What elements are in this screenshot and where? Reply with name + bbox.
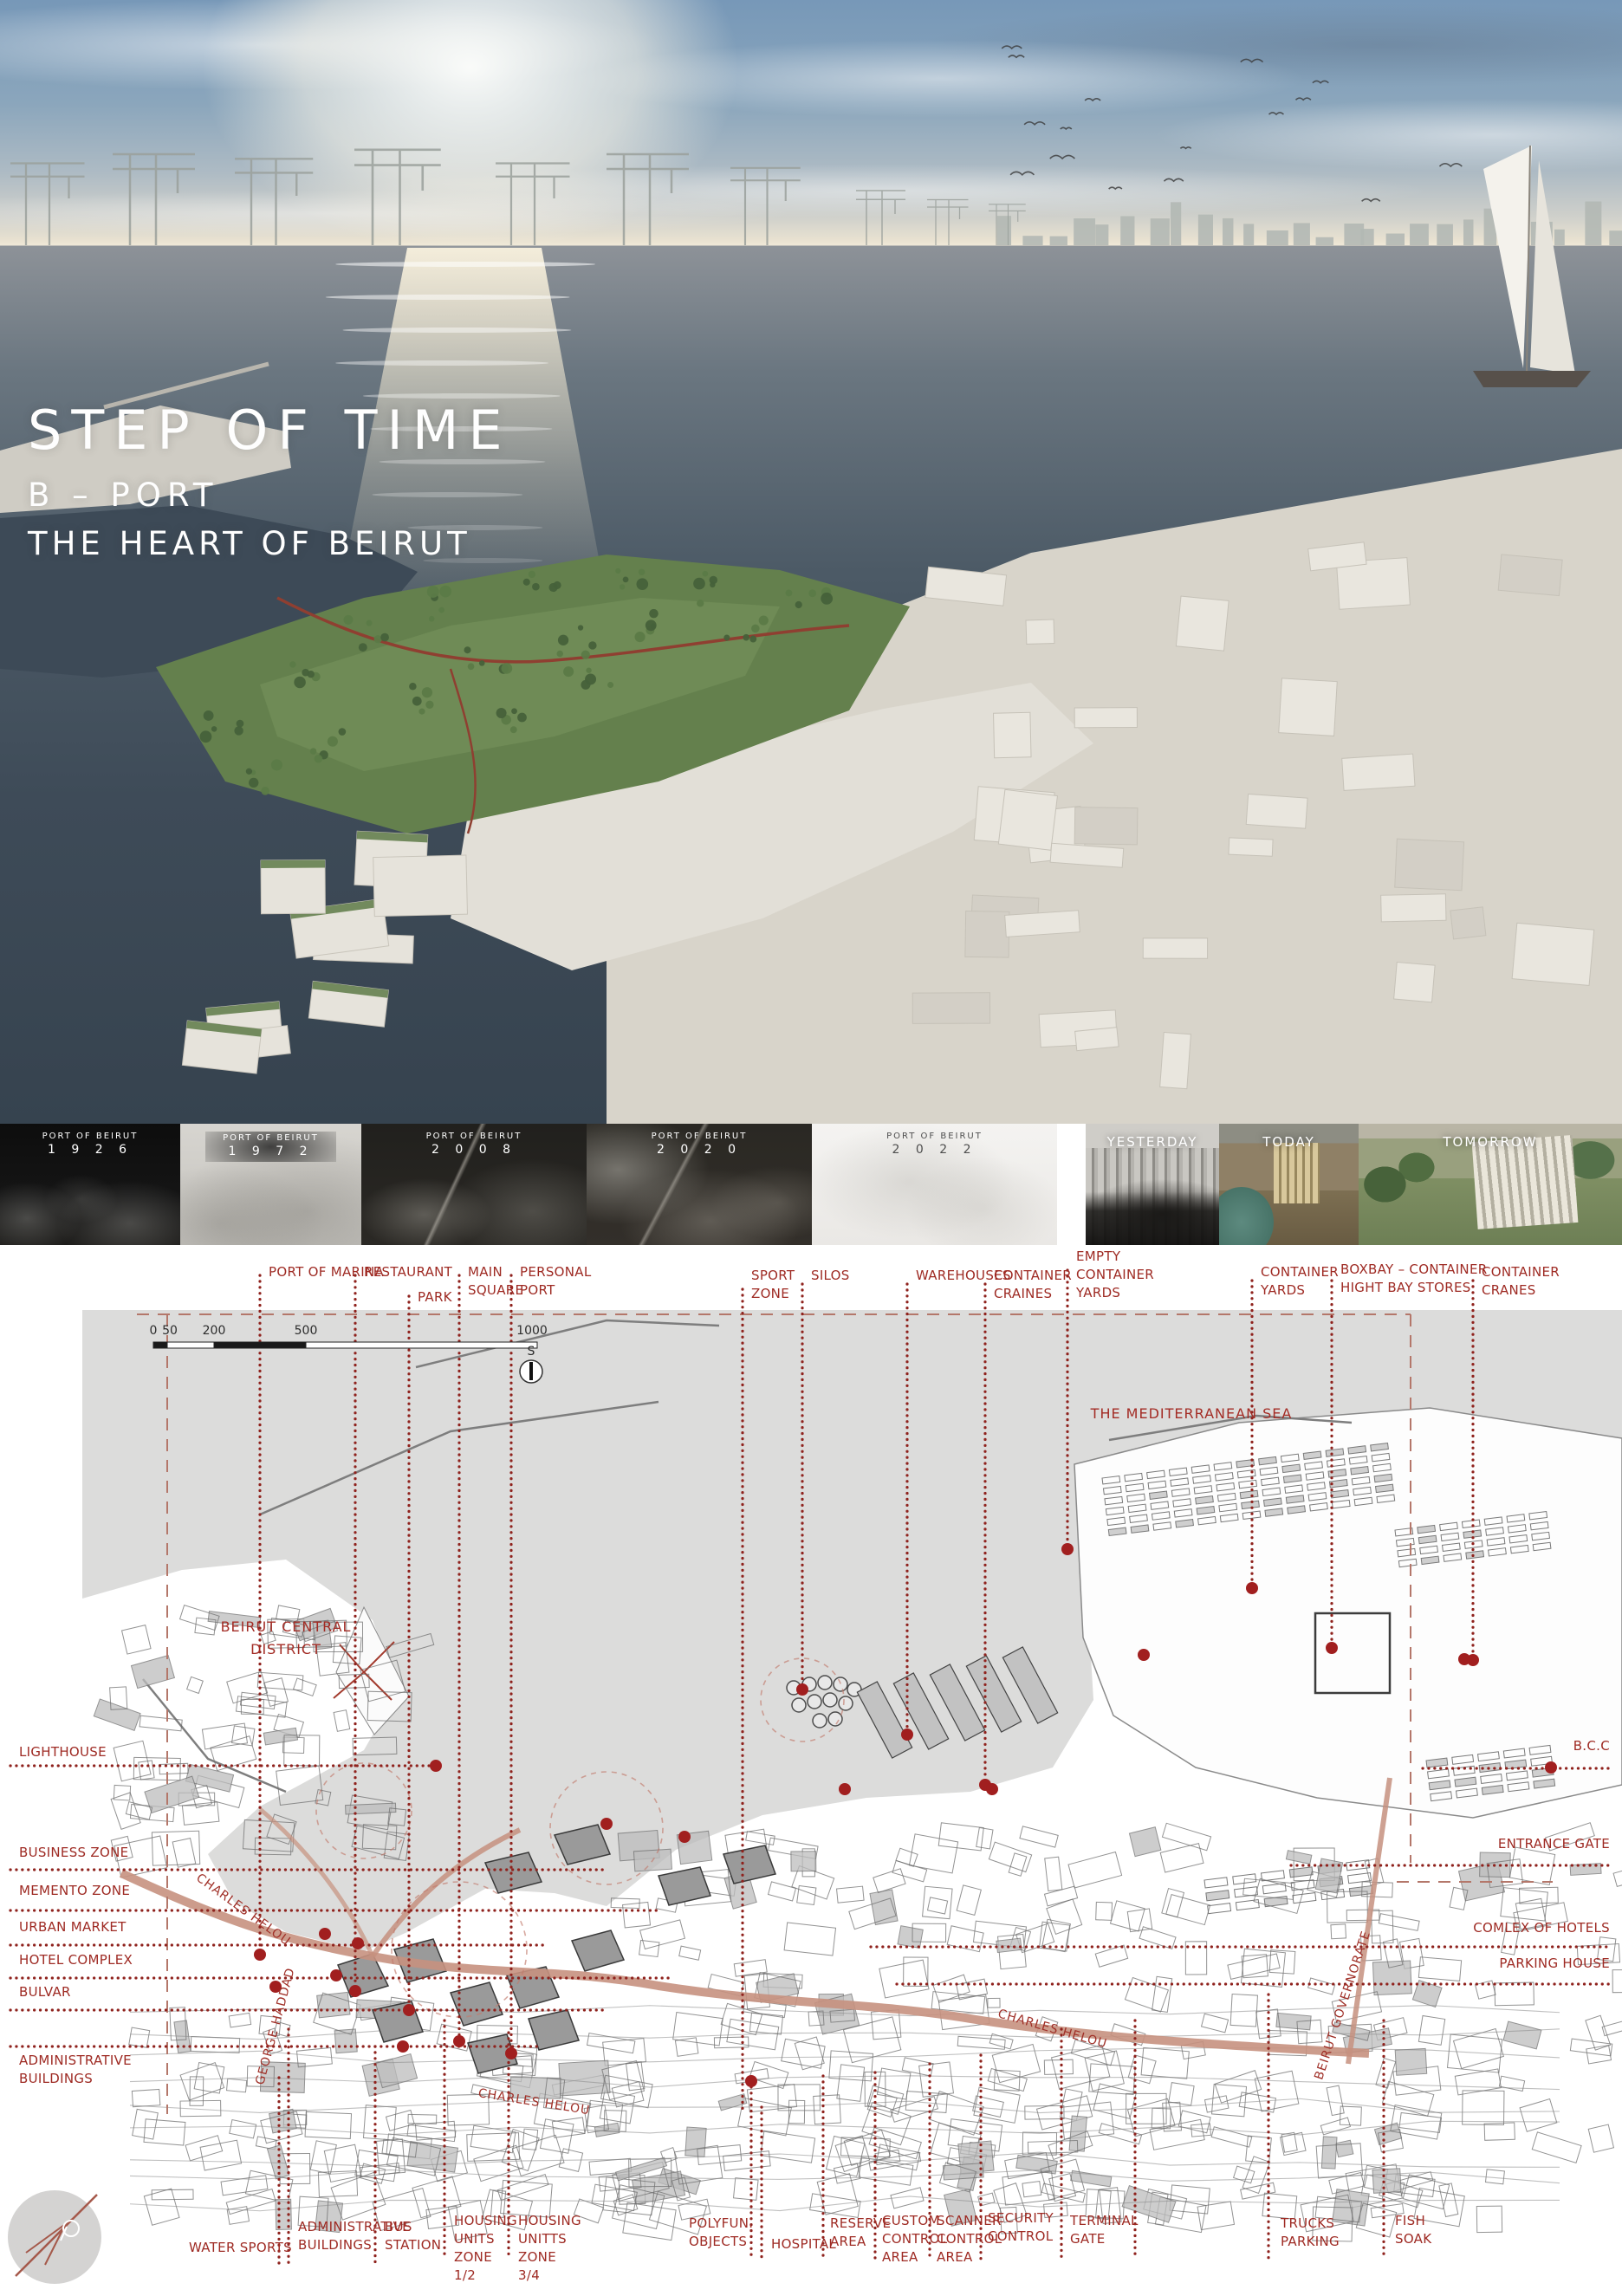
scale-tick-200: 200: [203, 1324, 226, 1338]
zone-label-restaurant: RESTAURANT: [364, 1263, 452, 1281]
zone-label-water-sports: WATER SPORTS: [189, 2239, 292, 2257]
zone-label-security-control: SECURITY CONTROL: [988, 2209, 1055, 2246]
presentation-board: STEP OF TIME B – PORT THE HEART OF BEIRU…: [0, 0, 1622, 2296]
zone-label-bcc: B.C.C: [1573, 1737, 1610, 1755]
site-plan-graphic: [0, 0, 1622, 2296]
zone-label-park: PARK: [418, 1288, 452, 1307]
zone-label-hospital: HOSPITAL: [771, 2235, 836, 2254]
zone-label-empty-container-yards: EMPTY CONTAINER YARDS: [1076, 1248, 1167, 1302]
zone-label-sport-zone: SPORT ZONE: [751, 1267, 803, 1303]
zone-label-trucks-parking: TRUCKS PARKING: [1281, 2215, 1341, 2251]
zone-label-container-cranes: CONTAINER CRANES: [1482, 1263, 1568, 1300]
zone-label-bulvar: BULVAR: [19, 1983, 71, 2001]
zone-label-housing-units-12: HOUSING UNITS ZONE 1/2: [454, 2212, 513, 2285]
north-compass-icon: [520, 1360, 542, 1383]
zone-label-administrative-buildings-left: ADMINISTRATIVE BUILDINGS: [19, 2052, 140, 2088]
sea-label: THE MEDITERRANEAN SEA: [1091, 1405, 1293, 1422]
scale-tick-0: 0: [150, 1324, 158, 1338]
zone-label-memento-zone: MEMENTO ZONE: [19, 1882, 130, 1900]
zone-label-polyfun-objects: POLYFUN. OBJECTS: [689, 2215, 748, 2251]
zone-label-urban-market: URBAN MARKET: [19, 1918, 127, 1936]
zone-label-container-yards: CONTAINER YARDS: [1261, 1263, 1347, 1300]
zone-label-parking-house: PARKING HOUSE: [1499, 1955, 1610, 1973]
zone-label-container-craines: CONTAINER CRAINES: [994, 1267, 1076, 1303]
scale-bar: [153, 1342, 537, 1348]
wind-rose-icon: [8, 2190, 101, 2284]
zone-label-comlex-of-hotels: COMLEX OF HOTELS: [1473, 1919, 1610, 1937]
zone-label-custom-control-area: CUSTOM CONTROL AREA: [882, 2212, 943, 2267]
zone-label-business-zone: BUSINESS ZONE: [19, 1844, 128, 1862]
zone-label-housing-units-34: HOUSING UNITTS ZONE 3/4: [518, 2212, 577, 2285]
zone-label-personal-port: PERSONAL PORT: [520, 1263, 598, 1300]
zone-label-fish-soak: FISH SOAK: [1395, 2212, 1438, 2248]
compass-south-letter: S: [528, 1345, 535, 1359]
zone-label-terminal-gate: TERMINAL GATE: [1070, 2212, 1138, 2248]
zone-label-silos: SILOS: [811, 1267, 850, 1285]
scale-tick-500: 500: [295, 1324, 318, 1338]
scale-tick-50: 50: [162, 1324, 178, 1338]
zone-label-entrance-gate: ENTRANCE GATE: [1498, 1835, 1610, 1853]
zone-label-boxbay: BOXBAY – CONTAINER HIGHT BAY STORES: [1340, 1261, 1505, 1297]
zone-label-bus-station: BUS STATION: [385, 2218, 438, 2254]
district-label-line1: BEIRUT CENTRAL: [221, 1618, 352, 1635]
scale-tick-1000: 1000: [516, 1324, 548, 1338]
zone-label-lighthouse: LIGHTHOUSE: [19, 1743, 107, 1761]
zone-label-hotel-complex: HOTEL COMPLEX: [19, 1951, 133, 1969]
district-label-line2: DISTRICT: [250, 1641, 321, 1657]
zone-label-reserve-area: RESERVE AREA: [830, 2215, 887, 2251]
